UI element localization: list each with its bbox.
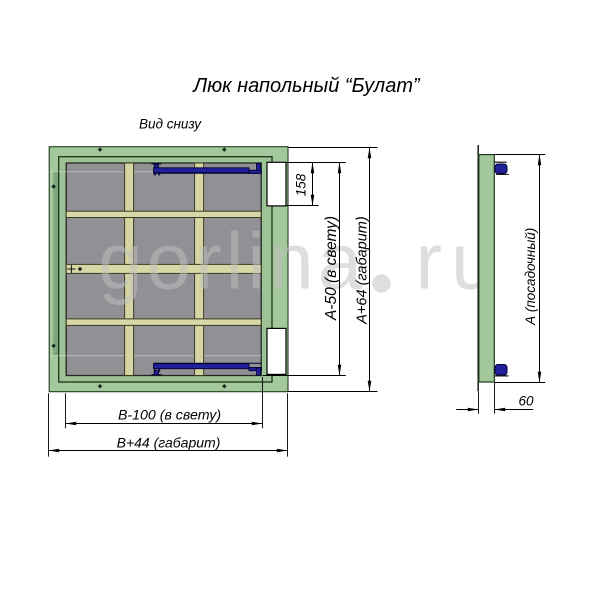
svg-text:В+44 (габарит): В+44 (габарит) [117, 435, 221, 451]
svg-text:А+64 (габарит): А+64 (габарит) [355, 216, 371, 324]
svg-text:158: 158 [294, 173, 309, 196]
svg-text:А-50 (в свету): А-50 (в свету) [323, 216, 340, 321]
svg-text:А (посадочный): А (посадочный) [523, 228, 538, 326]
svg-text:gorlina.ru: gorlina.ru [98, 217, 505, 306]
svg-text:Вид снизу: Вид снизу [139, 117, 202, 132]
svg-text:В-100 (в свету): В-100 (в свету) [118, 408, 221, 424]
svg-text:60: 60 [518, 393, 534, 408]
svg-text:Люк напольный “Булат”: Люк напольный “Булат” [191, 75, 421, 97]
